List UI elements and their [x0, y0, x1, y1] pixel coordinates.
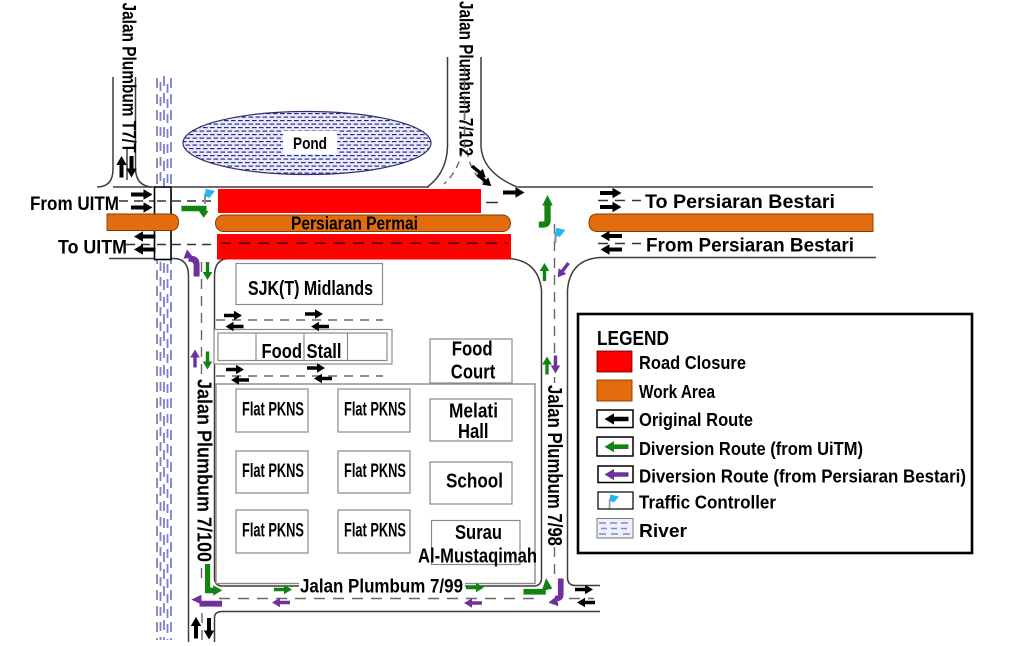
svg-text:Work Area: Work Area: [639, 381, 716, 402]
svg-text:Jalan Plumbum 7/100: Jalan Plumbum 7/100: [193, 379, 215, 562]
svg-text:Al-Mustaqimah: Al-Mustaqimah: [418, 546, 537, 568]
svg-text:Flat PKNS: Flat PKNS: [242, 400, 304, 421]
svg-text:School: School: [446, 471, 503, 493]
svg-text:To UITM: To UITM: [58, 238, 127, 259]
svg-text:SJK(T) Midlands: SJK(T) Midlands: [248, 278, 373, 300]
svg-text:Jalan Plumbum 7/102: Jalan Plumbum 7/102: [455, 1, 477, 156]
svg-text:Road Closure: Road Closure: [639, 352, 746, 373]
svg-text:Flat PKNS: Flat PKNS: [344, 521, 406, 542]
svg-text:Original Route: Original Route: [639, 409, 753, 430]
svg-text:Flat PKNS: Flat PKNS: [344, 461, 406, 482]
svg-text:Jalan Plumbum T7/T: Jalan Plumbum T7/T: [118, 3, 140, 153]
svg-text:LEGEND: LEGEND: [597, 328, 669, 350]
svg-text:Melati: Melati: [449, 401, 498, 423]
svg-text:Pond: Pond: [293, 134, 327, 153]
svg-text:Jalan Plumbum 7/98: Jalan Plumbum 7/98: [543, 385, 565, 546]
svg-text:From Persiaran Bestari: From Persiaran Bestari: [646, 236, 854, 257]
svg-text:Persiaran Permai: Persiaran Permai: [291, 214, 418, 234]
svg-text:Traffic Controller: Traffic Controller: [639, 492, 776, 513]
svg-text:Flat PKNS: Flat PKNS: [242, 521, 304, 542]
svg-text:From UITM: From UITM: [30, 194, 119, 215]
svg-text:Diversion Route (from UiTM): Diversion Route (from UiTM): [639, 438, 863, 459]
svg-text:Flat PKNS: Flat PKNS: [242, 461, 304, 482]
svg-text:Diversion Route (from Persiara: Diversion Route (from Persiaran Bestari): [639, 466, 966, 487]
svg-text:Jalan Plumbum 7/99: Jalan Plumbum 7/99: [300, 577, 463, 598]
svg-text:Court: Court: [451, 362, 496, 384]
svg-text:Hall: Hall: [458, 421, 489, 443]
svg-text:Food: Food: [452, 339, 493, 361]
svg-text:River: River: [639, 520, 687, 541]
svg-text:Food Stall: Food Stall: [262, 341, 342, 363]
svg-text:To Persiaran Bestari: To Persiaran Bestari: [645, 192, 835, 213]
svg-text:Flat PKNS: Flat PKNS: [344, 400, 406, 421]
svg-text:Surau: Surau: [455, 522, 502, 544]
